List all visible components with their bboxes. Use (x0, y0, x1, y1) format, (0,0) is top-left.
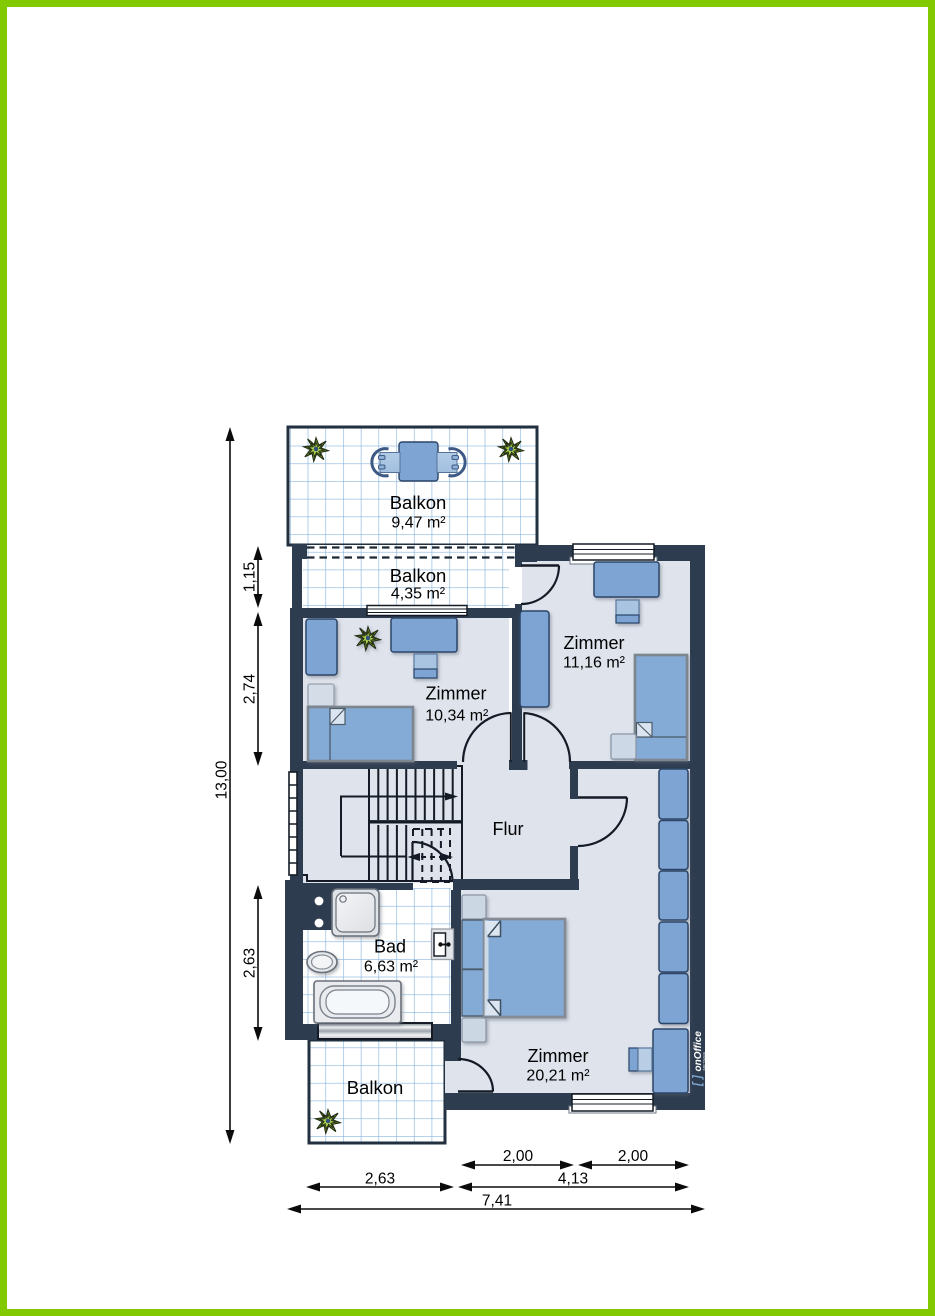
svg-text:Zimmer: Zimmer (426, 684, 487, 704)
svg-text:Balkon: Balkon (390, 565, 447, 586)
svg-text:4,13: 4,13 (558, 1171, 588, 1188)
svg-text:Zimmer: Zimmer (528, 1046, 589, 1066)
svg-text:13,00: 13,00 (214, 760, 231, 799)
svg-text:Balkon: Balkon (347, 1077, 404, 1098)
svg-text:SOFTWARE: SOFTWARE (702, 1052, 706, 1071)
svg-text:2,00: 2,00 (618, 1148, 649, 1165)
svg-text:9,47 m²: 9,47 m² (391, 515, 446, 532)
svg-text:Balkon: Balkon (390, 492, 447, 513)
svg-text:2,74: 2,74 (242, 674, 259, 705)
svg-text:6,63 m²: 6,63 m² (364, 959, 419, 976)
svg-text:4,35 m²: 4,35 m² (391, 586, 446, 603)
svg-text:20,21 m²: 20,21 m² (526, 1068, 590, 1085)
svg-text:Bad: Bad (374, 937, 406, 957)
svg-text:11,16 m²: 11,16 m² (563, 655, 626, 672)
svg-text:Zimmer: Zimmer (564, 633, 625, 653)
svg-text:7,41: 7,41 (482, 1193, 512, 1210)
svg-text:10,34 m²: 10,34 m² (425, 708, 489, 725)
svg-text:2,00: 2,00 (503, 1148, 534, 1165)
svg-text:1,15: 1,15 (242, 562, 259, 592)
svg-text:2,63: 2,63 (242, 948, 259, 978)
svg-text:[ ]: [ ] (692, 1074, 704, 1087)
svg-text:2,63: 2,63 (365, 1171, 395, 1188)
svg-text:Flur: Flur (493, 819, 524, 839)
